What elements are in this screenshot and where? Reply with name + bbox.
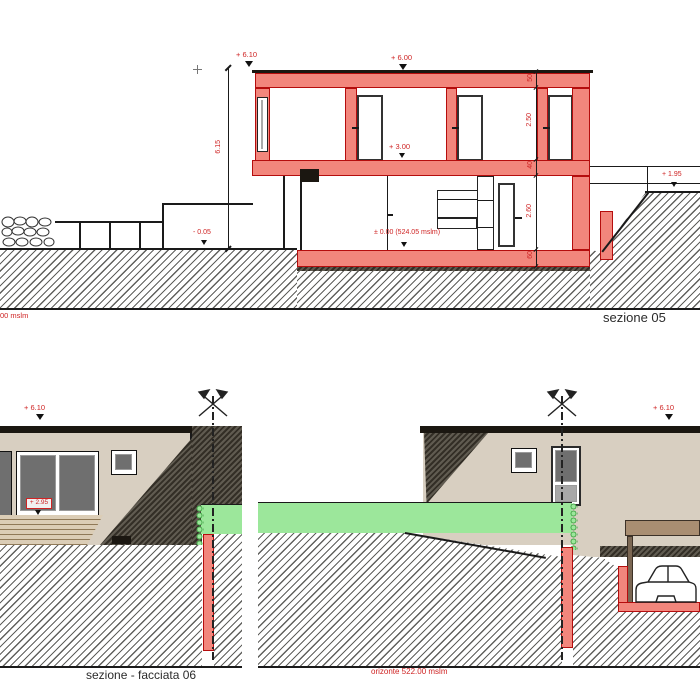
level-marker xyxy=(399,153,405,158)
upper-door-1-handle xyxy=(352,127,359,129)
retaining-wall-right xyxy=(600,211,613,260)
upper-door-3 xyxy=(548,95,573,161)
grass-scallop-edge xyxy=(570,503,578,550)
fence-post xyxy=(79,221,81,249)
horizon-line xyxy=(0,308,700,310)
grass-strip xyxy=(201,505,242,534)
terrace-column-line xyxy=(283,176,285,250)
roof-slab xyxy=(255,73,590,88)
level-marker xyxy=(36,414,44,420)
level-marker xyxy=(399,64,407,70)
level-marker xyxy=(671,182,677,187)
wardrobe-shelf-line xyxy=(478,200,493,201)
level-label-deck: + 2.95 xyxy=(30,500,48,507)
dim-label-total: 6.15 xyxy=(215,140,222,154)
dim-line-chain xyxy=(536,70,537,267)
elevation-line-2 xyxy=(590,183,700,184)
lower-wall-step xyxy=(300,169,319,182)
wardrobe-shelf-line xyxy=(478,227,493,228)
section-trace-line xyxy=(212,396,214,662)
level-marker xyxy=(665,414,673,420)
vent-opening xyxy=(112,536,131,544)
wardrobe-outline xyxy=(477,176,494,250)
shadow-side xyxy=(192,426,242,506)
bed-pillow-line xyxy=(437,199,478,200)
ground-hatch-excavation xyxy=(573,555,620,667)
window-partial-left xyxy=(0,451,12,516)
dim-label-lower-room: 2.60 xyxy=(526,204,533,218)
door-panel-lower xyxy=(555,485,577,502)
lower-wall-left-line xyxy=(300,182,302,250)
fence-post xyxy=(139,221,141,249)
section-trace-line xyxy=(561,396,563,662)
terrain-top-line xyxy=(645,191,700,193)
rock-wall xyxy=(1,215,57,249)
upper-door-2-handle xyxy=(452,127,459,129)
base-slab xyxy=(297,250,590,267)
elevation-line-1 xyxy=(590,166,700,167)
survey-station-icon xyxy=(543,389,581,419)
small-window xyxy=(111,450,137,475)
lower-door-handle xyxy=(515,217,522,219)
glass-pane xyxy=(115,454,132,470)
upper-window-glass-line xyxy=(261,100,263,149)
roof-band xyxy=(420,426,700,433)
elevation-vertical xyxy=(647,166,648,192)
level-label-roof-left: + 6.10 xyxy=(236,51,257,59)
carport-shadow-band xyxy=(600,546,700,557)
fence-post xyxy=(109,221,111,249)
dim-label-roof-slab: 50 xyxy=(527,74,534,82)
wood-deck xyxy=(0,515,103,545)
level-label-terrain-left: - 0.05 xyxy=(193,229,211,236)
survey-station-icon xyxy=(194,389,232,419)
level-label-roof-right: + 6.00 xyxy=(391,54,412,62)
lower-wall-right xyxy=(572,176,590,250)
level-marker xyxy=(245,61,253,67)
small-window xyxy=(511,448,537,473)
level-label-upper-floor: + 3.00 xyxy=(389,143,410,151)
lower-door xyxy=(498,183,515,247)
wall-step-vertical xyxy=(162,203,164,249)
deck-level-badge: + 2.95 xyxy=(26,498,52,509)
level-label-zero: ± 0.00 (524.05 mslm) xyxy=(374,229,440,236)
level-label-roof: + 6.10 xyxy=(24,404,45,412)
ground-hatch-left xyxy=(0,250,297,309)
retaining-wall xyxy=(561,547,573,648)
retaining-wall-line-high xyxy=(163,203,253,205)
level-marker xyxy=(35,510,41,515)
drawing-sheet: 6.15 50 2.50 40 2.60 60 + 6.10 + 6.00 + … xyxy=(0,0,700,700)
dim-line-total xyxy=(228,68,229,250)
dim-label-base-slab: 60 xyxy=(527,251,534,259)
bed-outline xyxy=(437,190,478,218)
dim-label-floor-slab: 40 xyxy=(527,161,534,169)
upper-door-2 xyxy=(457,95,483,161)
dim-label-upper-room: 2.50 xyxy=(526,113,533,127)
foundation-band xyxy=(297,267,590,271)
section-05-title: sezione 05 xyxy=(603,311,666,324)
grass-strip xyxy=(258,503,572,533)
upper-window-left xyxy=(257,97,268,152)
upper-partition-3 xyxy=(537,88,548,161)
ground-hatch-under-building xyxy=(297,267,590,309)
lower-glass-handle xyxy=(388,214,393,216)
lower-glass-partition xyxy=(387,176,388,250)
facade-06-title: sezione - facciata 06 xyxy=(86,669,196,681)
upper-door-3-handle xyxy=(543,127,550,129)
horizon-label: orizonte 522.00 mslm xyxy=(371,668,447,676)
upper-partition-1 xyxy=(345,88,357,161)
upper-wall-right xyxy=(572,88,590,161)
glass-pane xyxy=(515,452,532,468)
upper-partition-2 xyxy=(446,88,457,161)
level-marker xyxy=(201,240,207,245)
glass-pane xyxy=(59,455,95,511)
level-label-terrain-right: + 1.95 xyxy=(662,171,682,178)
survey-cross-marker xyxy=(197,65,198,74)
car-outline xyxy=(634,558,698,604)
level-marker xyxy=(401,242,407,247)
level-label-roof: + 6.10 xyxy=(653,404,674,412)
upper-door-1 xyxy=(357,95,383,161)
ground-hatch-right-of-wall xyxy=(214,534,242,667)
low-cabinet-outline xyxy=(437,218,477,229)
carport-beam xyxy=(625,520,700,536)
horizon-text-partial: 00 mslm xyxy=(0,312,28,320)
roof-band xyxy=(0,426,192,433)
ground-hatch-under-garage xyxy=(620,611,700,667)
door-glass-upper xyxy=(555,450,577,482)
ground-hatch xyxy=(0,545,202,667)
entry-door xyxy=(551,446,581,506)
drawing-bottom-line xyxy=(258,666,700,668)
